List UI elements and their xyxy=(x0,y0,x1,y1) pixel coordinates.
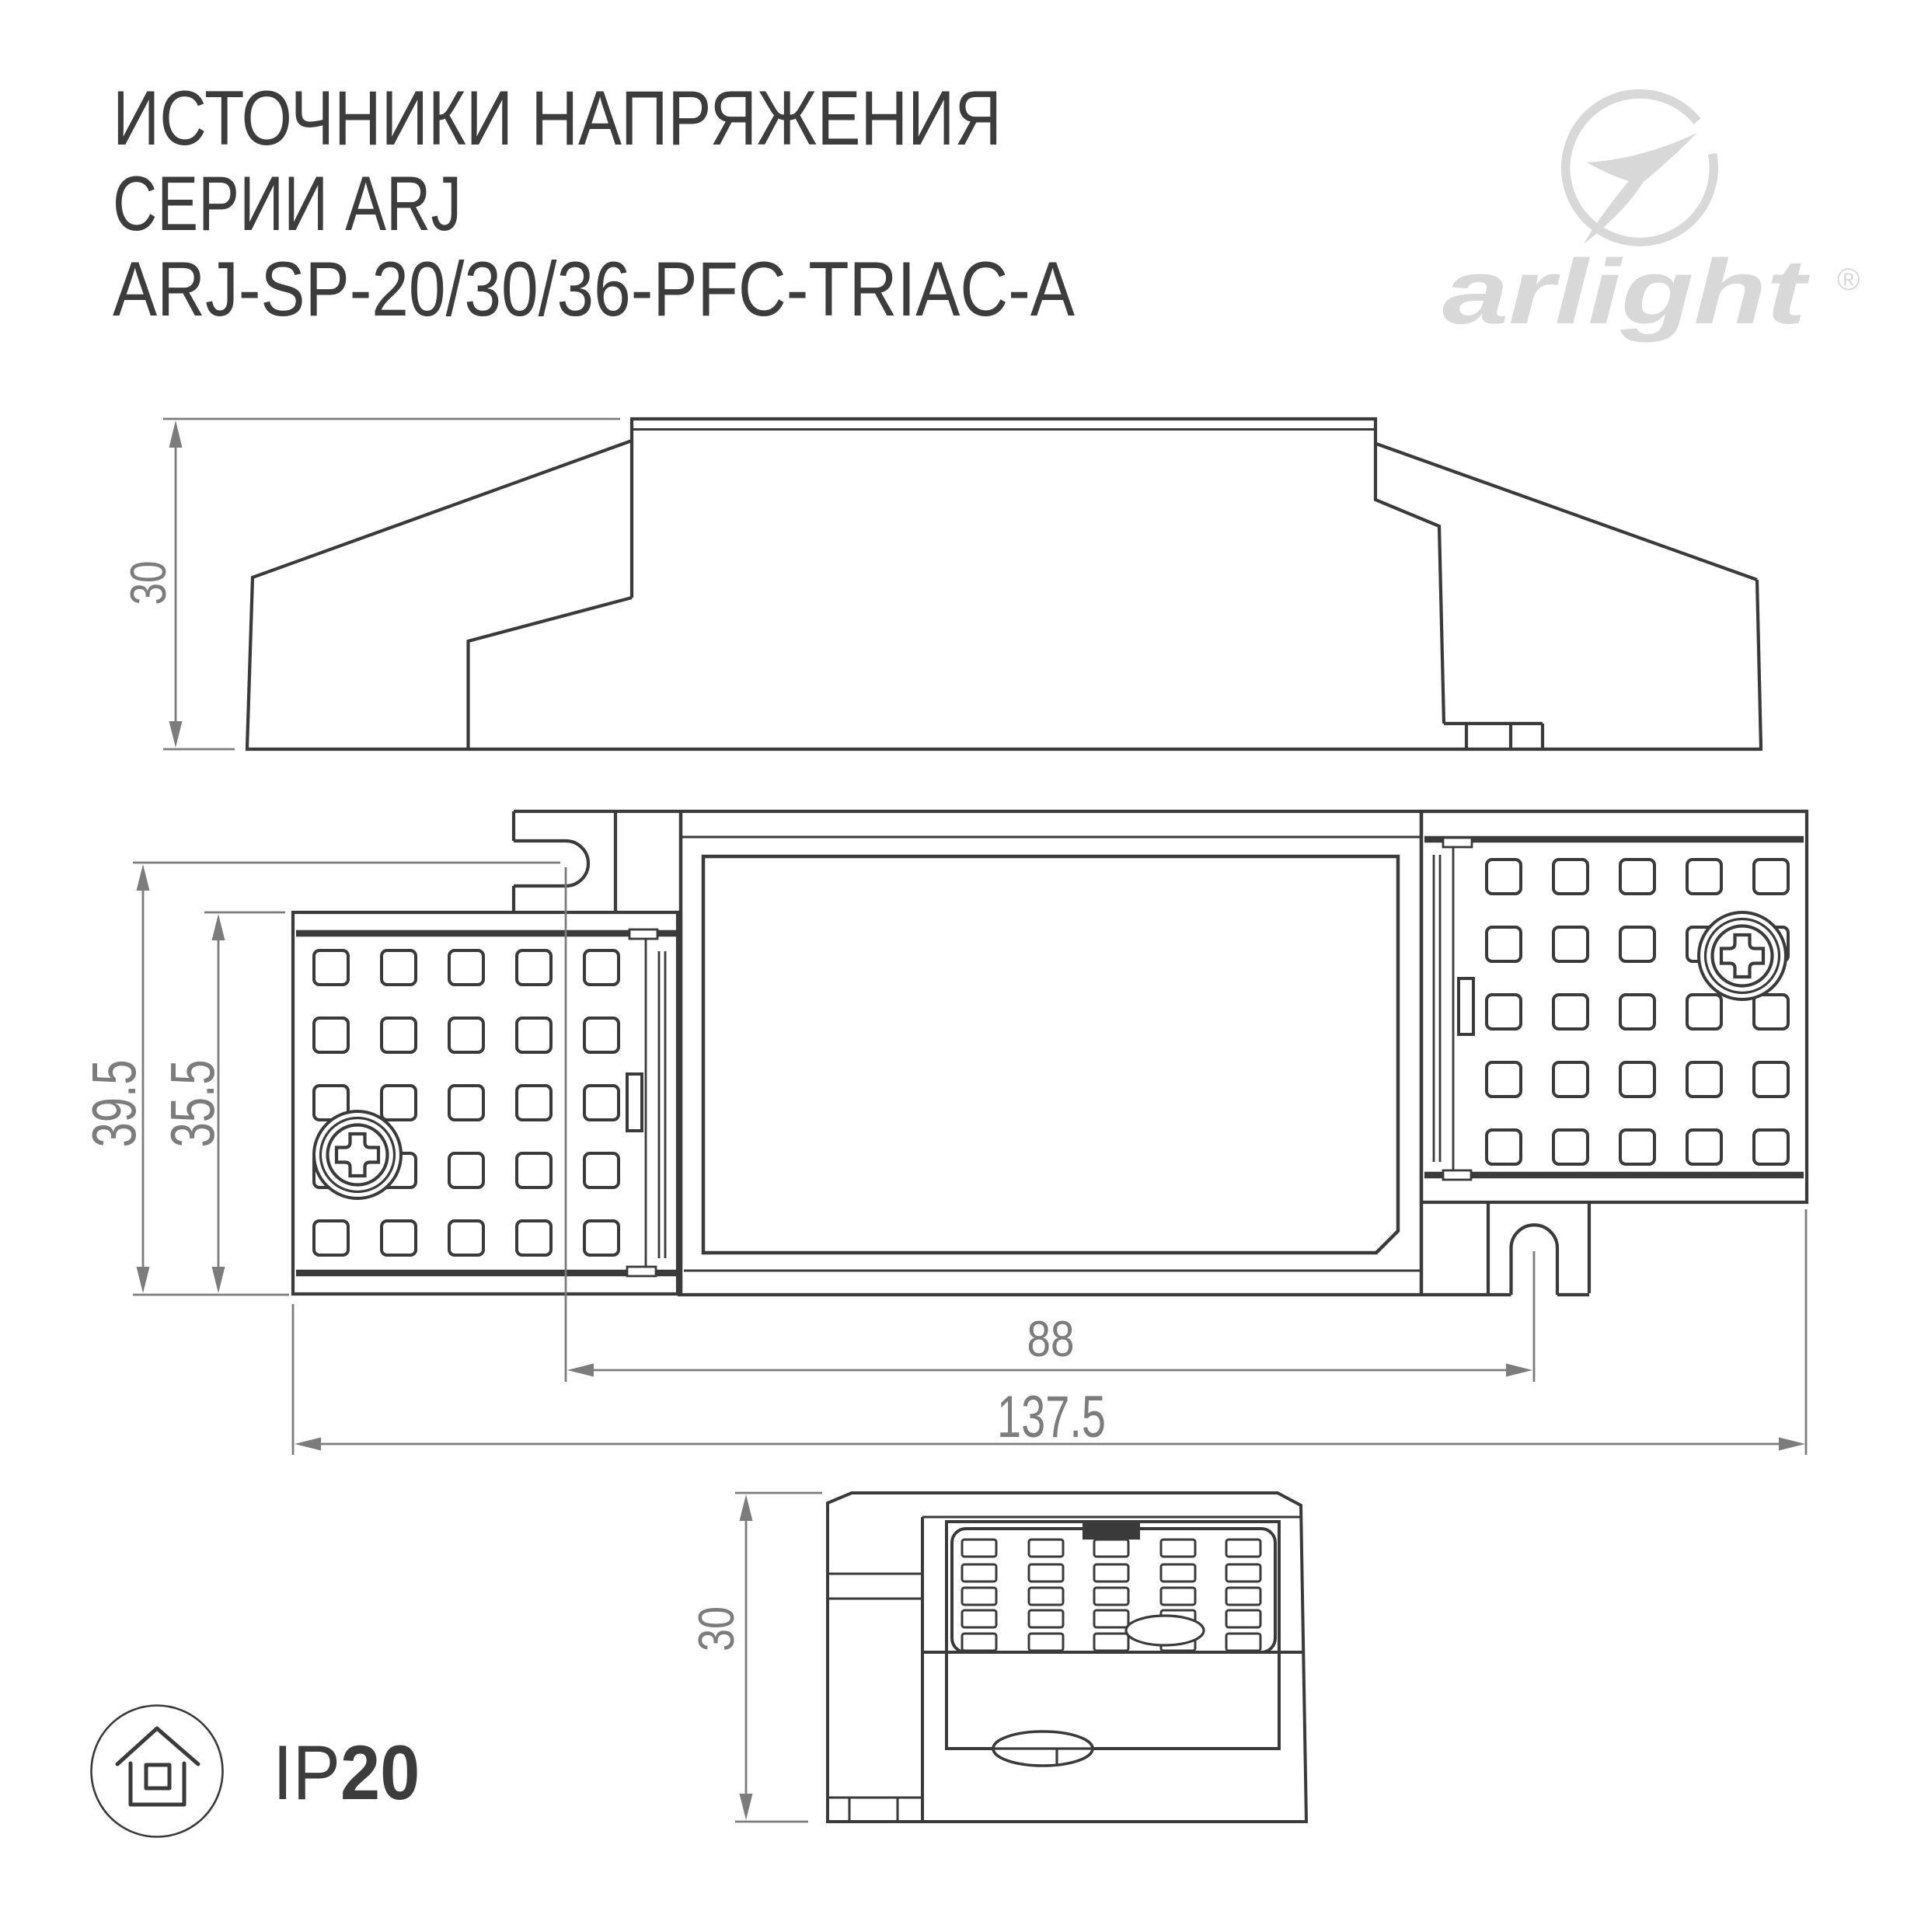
svg-text:®: ® xyxy=(1837,263,1860,297)
svg-text:35.5: 35.5 xyxy=(158,1060,227,1148)
svg-text:30: 30 xyxy=(120,561,176,605)
svg-text:ARJ-SP-20/30/36-PFC-TRIAC-A: ARJ-SP-20/30/36-PFC-TRIAC-A xyxy=(113,246,1075,332)
svg-text:39.5: 39.5 xyxy=(79,1060,148,1148)
svg-text:137.5: 137.5 xyxy=(997,1384,1106,1450)
svg-text:30: 30 xyxy=(688,1606,744,1651)
svg-text:СЕРИИ ARJ: СЕРИИ ARJ xyxy=(113,160,462,246)
svg-text:arlight: arlight xyxy=(1442,241,1811,344)
svg-text:88: 88 xyxy=(1027,1310,1075,1367)
svg-text:ИСТОЧНИКИ НАПРЯЖЕНИЯ: ИСТОЧНИКИ НАПРЯЖЕНИЯ xyxy=(113,75,1002,161)
svg-text:IP20: IP20 xyxy=(273,1730,420,1816)
